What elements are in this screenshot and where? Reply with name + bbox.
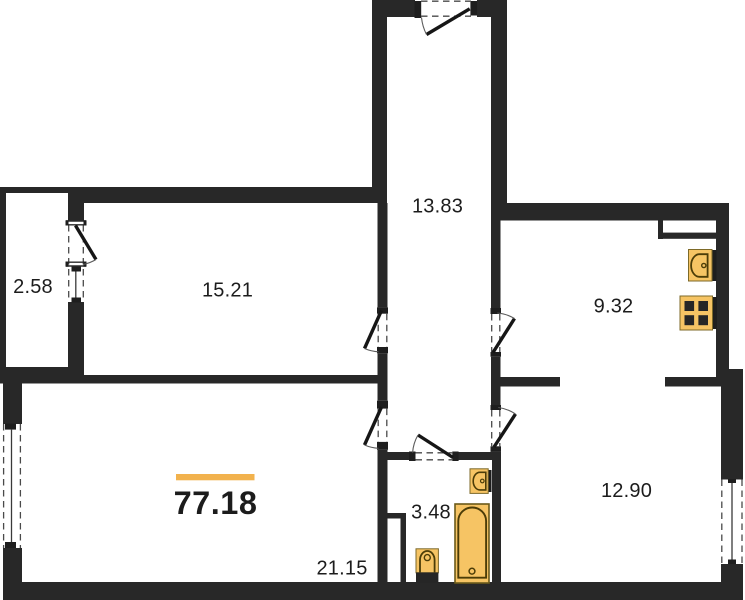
svg-text:21.15: 21.15 xyxy=(316,558,367,580)
svg-text:12.90: 12.90 xyxy=(601,480,652,502)
svg-text:15.21: 15.21 xyxy=(202,279,253,301)
svg-text:2.58: 2.58 xyxy=(13,276,53,298)
svg-text:9.32: 9.32 xyxy=(594,296,634,318)
svg-text:77.18: 77.18 xyxy=(174,485,258,521)
svg-text:3.48: 3.48 xyxy=(411,501,451,523)
svg-text:13.83: 13.83 xyxy=(412,196,463,218)
